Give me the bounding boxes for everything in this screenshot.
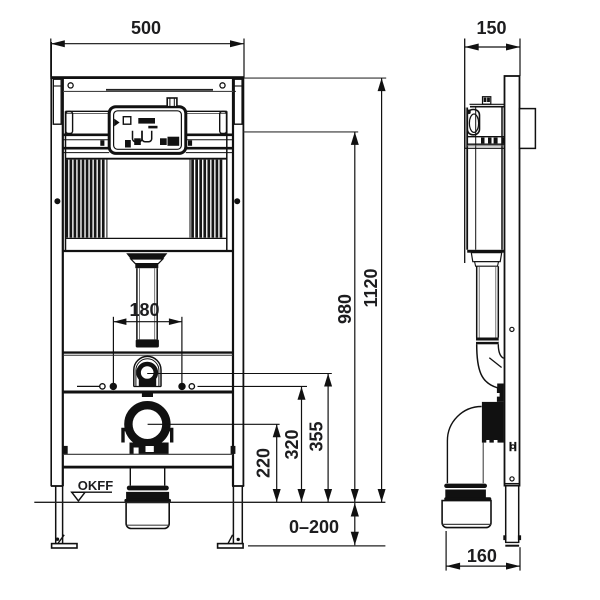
svg-text:150: 150	[476, 18, 506, 38]
svg-text:160: 160	[467, 546, 497, 566]
svg-text:355: 355	[307, 421, 327, 451]
svg-text:500: 500	[131, 18, 161, 38]
svg-text:1120: 1120	[361, 268, 381, 307]
svg-text:220: 220	[254, 448, 274, 478]
svg-text:180: 180	[129, 300, 159, 320]
svg-text:OKFF: OKFF	[78, 478, 113, 493]
svg-text:320: 320	[282, 429, 302, 459]
svg-text:980: 980	[335, 294, 355, 324]
svg-text:0–200: 0–200	[289, 517, 339, 537]
